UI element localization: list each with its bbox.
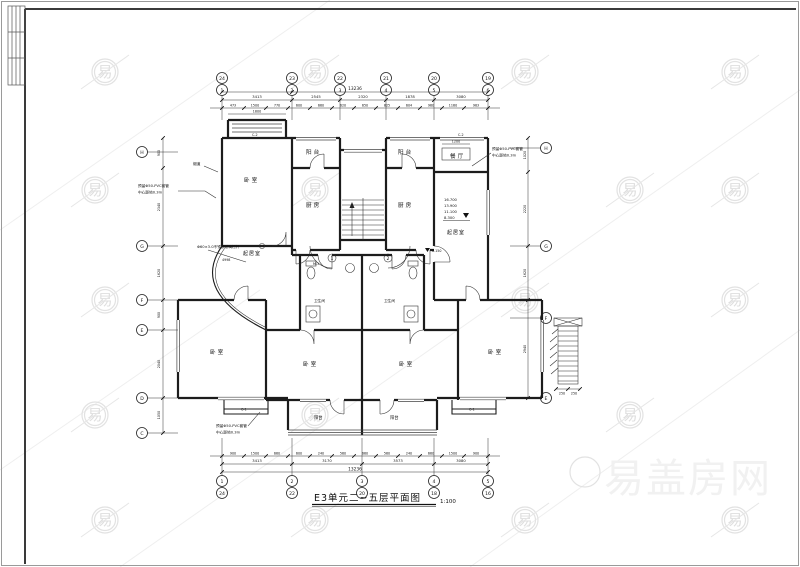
dim-seg: 1160: [449, 104, 457, 108]
grid-label: 5: [487, 479, 490, 485]
grid-label: 5: [433, 88, 436, 94]
dim-seg: 660: [362, 452, 368, 456]
room-label-balcony: 阳台: [314, 414, 323, 421]
grid-label: 3: [361, 479, 364, 485]
grid-label: 1: [221, 479, 224, 485]
room-label-bath: 卫生间: [384, 298, 395, 303]
dim-span: 2220: [523, 205, 527, 213]
binding-strip: [8, 6, 25, 85]
dim-span: 1620: [157, 269, 161, 277]
dim-seg: 620: [340, 104, 346, 108]
dim-seg: 473: [230, 104, 236, 108]
level-triangle-icon: [463, 213, 469, 218]
unit-number: 1: [331, 256, 334, 262]
grid-label: G: [544, 244, 548, 250]
grid-label: D: [140, 396, 144, 402]
dim-span: 2320: [358, 95, 368, 99]
window-tag: C-1: [469, 408, 475, 412]
title-scale: 1:100: [440, 499, 456, 505]
room-label-bedroom: 卧室: [488, 348, 503, 356]
dim-span: 3170: [322, 459, 332, 463]
dim-span: 3080: [456, 459, 466, 463]
dim-seg: 650: [362, 104, 368, 108]
dim-closet: 1200: [452, 140, 460, 144]
level-value: 8.300: [444, 216, 455, 220]
grid-label: H: [544, 146, 547, 152]
room-label-bath: 卫生间: [314, 298, 325, 303]
grid-label: F: [141, 298, 144, 304]
note-flue: 烟道: [193, 161, 201, 166]
floor-plan: 1200 1800: [138, 110, 543, 436]
dim-span: 2040: [157, 360, 161, 368]
room-label-kitchen: 厨房: [306, 201, 321, 209]
dim-seg: 960: [428, 104, 434, 108]
window-tag: C-2: [252, 133, 258, 137]
grid-label: 24: [219, 76, 225, 82]
room-label-bedroom: 卧室: [244, 176, 259, 184]
dim-seg: 1500: [449, 452, 457, 456]
dim-span: 2940: [523, 345, 527, 353]
grid-label: F: [545, 316, 548, 322]
room-label-kitchen: 厨房: [398, 201, 413, 209]
room-labels: 卧室 阳台 阳台 餐厅 厨房 厨房 起居室 起居室 卫生间 卫生间 卧室 卧室 …: [210, 148, 503, 421]
note-pvc: 预留Φ50-PVC套管: [492, 146, 523, 151]
grid-label: 21: [383, 76, 389, 82]
dim-span: 3413: [252, 95, 262, 99]
annotations: 预留Φ50-PVC套管 中心距地0.3m 预留Φ50-PVC套管 中心距地0.3…: [138, 133, 523, 435]
level-marks: 16.700 13.900 11.100 8.300: [443, 198, 470, 221]
dim-seg: 560: [340, 452, 346, 456]
grid-label: C: [140, 431, 143, 437]
stair: [342, 198, 384, 240]
grid-label: 1: [221, 88, 224, 94]
dim-span: 2545: [311, 95, 321, 99]
dim-span: 3080: [456, 95, 466, 99]
watermark-logo: 易盖房网: [604, 456, 772, 502]
dimension-top: 13236 3413 2545 2320 1878 3080 473 1500 …: [210, 86, 500, 120]
dim-bay: 1800: [253, 110, 261, 114]
note-railing: Φ60×3.0不锈钢玻璃栏杆: [197, 244, 240, 249]
grid-label: E: [545, 396, 548, 402]
dim-seg: 240: [318, 452, 324, 456]
level-value: 16.700: [444, 198, 458, 202]
dim-span: 2340: [157, 203, 161, 211]
dim-total-top: 13236: [348, 86, 362, 92]
dim-span: 3413: [252, 459, 262, 463]
drawing-sheet: 易 易盖房网 13236 3413 2545 232: [0, 0, 800, 567]
grid-label: 22: [289, 491, 295, 497]
grid-label: 2: [291, 479, 294, 485]
dim-railing: 4998: [222, 258, 230, 262]
dim-seg: 1500: [251, 452, 259, 456]
room-label-bedroom: 卧室: [303, 360, 318, 368]
room-label-bedroom: 卧室: [399, 360, 414, 368]
grid-label: 20: [431, 76, 437, 82]
grid-label: 4: [385, 88, 388, 94]
dim-detail: 250: [571, 392, 577, 396]
door-tag: M-1: [313, 262, 319, 266]
note-pvc: 预留Φ50-PVC套管: [138, 183, 169, 188]
note-pvc: 中心距地0.3m: [492, 153, 517, 158]
room-label-balcony: 阳台: [306, 148, 321, 156]
dim-seg: 600: [296, 104, 302, 108]
dim-seg: 770: [274, 104, 280, 108]
dim-seg: 900: [473, 452, 479, 456]
dim-seg: 240: [406, 452, 412, 456]
walls: [178, 120, 542, 435]
level-triangle-icon: [425, 248, 430, 252]
grid-label: E: [141, 328, 144, 334]
dim-seg: 660: [274, 452, 280, 456]
dim-seg: 660: [428, 452, 434, 456]
dim-seg: 1500: [251, 104, 259, 108]
title-text: E3单元二~五层平面图: [314, 492, 421, 504]
grid-label: 18: [431, 491, 437, 497]
grid-label: 4: [433, 479, 436, 485]
dim-seg: 604: [406, 104, 412, 108]
room-label-balcony: 阳台: [398, 148, 413, 156]
room-label-dining: 餐厅: [450, 152, 465, 160]
note-pvc: 预留Φ50-PVC套管: [216, 423, 247, 428]
dim-span: 1620: [523, 269, 527, 277]
dim-seg: 983: [473, 104, 479, 108]
logo-icon: [570, 457, 600, 487]
entry-level: 0.150: [432, 249, 441, 253]
level-value: 11.100: [444, 210, 458, 214]
note-pvc: 中心距地0.3m: [138, 190, 163, 195]
room-label-balcony: 阳台: [390, 414, 399, 421]
grid-label: 3: [339, 88, 342, 94]
dim-seg: 825: [384, 104, 390, 108]
room-label-bedroom: 卧室: [210, 348, 225, 356]
grid-label: 23: [289, 76, 295, 82]
dim-span: 1878: [405, 95, 415, 99]
dim-detail: 250: [559, 392, 565, 396]
room-label-living: 起居室: [447, 229, 465, 236]
grid-bubbles-right: H G F E: [541, 143, 552, 404]
dim-total-bottom: 13236: [348, 467, 362, 473]
level-value: 13.900: [444, 204, 458, 208]
grid-label: 2: [291, 88, 294, 94]
doors: [234, 154, 480, 414]
cad-canvas: 易 易盖房网 13236 3413 2545 232: [0, 0, 800, 567]
room-label-living: 起居室: [243, 250, 261, 257]
dimension-left: 900 2340 1620 900 2040 1050: [148, 136, 179, 435]
grid-label: 16: [485, 491, 491, 497]
dim-span: 1050: [157, 411, 161, 419]
window-tag: C-1: [241, 408, 247, 412]
dimension-bottom: 900 1500 660 600 240 560 660 560 240 660…: [210, 438, 500, 476]
dim-span: 3573: [393, 459, 403, 463]
unit-number: 2: [387, 256, 390, 262]
grid-label: 6: [487, 88, 490, 94]
grid-label: H: [140, 150, 143, 156]
ladder-detail: 250 250: [550, 318, 582, 396]
dim-span: 900: [157, 150, 161, 156]
note-pvc: 中心距地0.3m: [216, 430, 241, 435]
watermark-grid: 易盖房网: [0, 0, 800, 567]
dim-span: 900: [157, 312, 161, 318]
grid-label: 22: [337, 76, 343, 82]
grid-label: 24: [219, 491, 225, 497]
dim-seg: 600: [296, 452, 302, 456]
grid-label: 19: [485, 76, 491, 82]
window-tag: C-2: [458, 133, 464, 137]
dimension-right: 1020 2220 1620 2940: [510, 136, 541, 400]
dim-span: 1020: [523, 151, 527, 159]
grid-label: G: [140, 244, 144, 250]
dim-seg: 660: [318, 104, 324, 108]
dim-seg: 900: [230, 452, 236, 456]
dim-seg: 560: [384, 452, 390, 456]
